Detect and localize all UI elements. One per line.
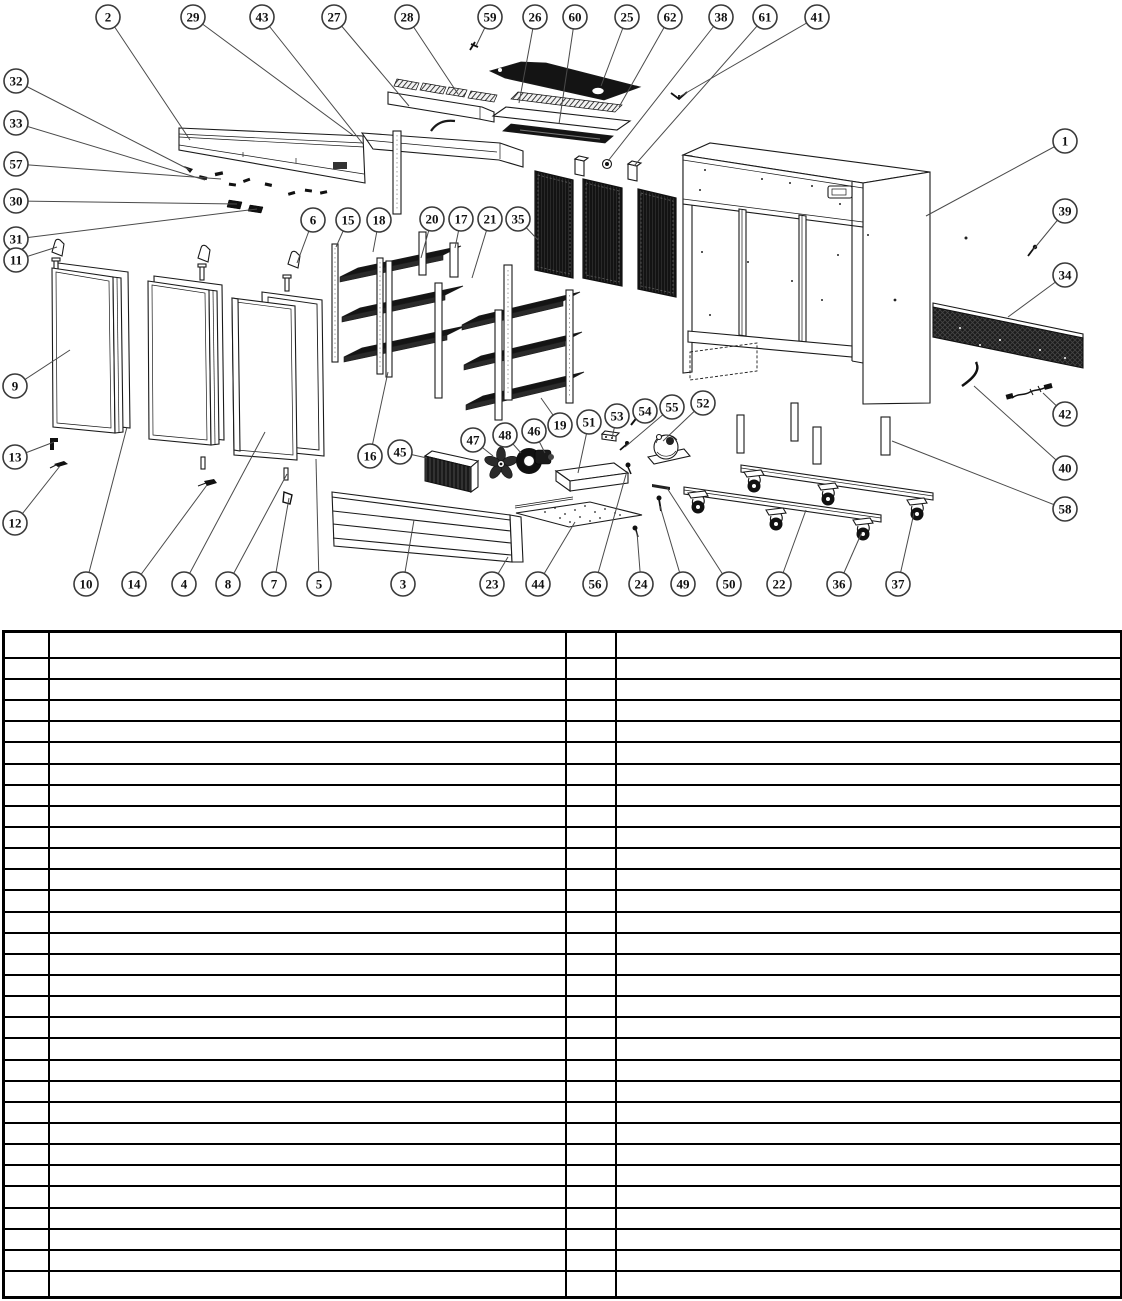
leader-line-32 xyxy=(16,81,190,170)
parts-table-cell-item-no-left xyxy=(4,890,49,911)
parts-table-cell-description-left xyxy=(49,890,566,911)
mesh-panels xyxy=(535,171,676,297)
parts-table-cell-description-left xyxy=(49,996,566,1017)
parts-table-cell-item-no-left xyxy=(4,1208,49,1229)
leader-line-30 xyxy=(16,201,237,204)
base-post xyxy=(791,403,798,441)
parts-table-row xyxy=(4,954,1122,975)
balloon-number-13: 13 xyxy=(9,450,23,465)
parts-table-row xyxy=(4,1186,1122,1207)
callout-balloon-53: 53 xyxy=(605,404,629,428)
parts-table-cell-item-no-right xyxy=(566,1123,616,1144)
parts-table-row xyxy=(4,912,1122,933)
parts-table-cell-item-no-right xyxy=(566,996,616,1017)
parts-table-row xyxy=(4,996,1122,1017)
parts-table-cell-description-right xyxy=(616,742,1122,763)
brand-logo-plate xyxy=(333,162,347,169)
balloon-number-15: 15 xyxy=(342,213,356,228)
callout-balloon-24: 24 xyxy=(629,572,653,596)
balloon-number-58: 58 xyxy=(1059,502,1073,517)
parts-table-row xyxy=(4,1038,1122,1059)
parts-table-cell-description-right xyxy=(616,700,1122,721)
parts-table-row xyxy=(4,1229,1122,1250)
parts-table-cell-description-right xyxy=(616,764,1122,785)
compressor xyxy=(648,435,690,465)
parts-table-cell-description-left xyxy=(49,764,566,785)
balloon-number-46: 46 xyxy=(528,424,542,439)
callout-balloon-34: 34 xyxy=(1053,263,1077,287)
callout-balloon-4: 4 xyxy=(172,572,196,596)
callout-balloon-3: 3 xyxy=(391,572,415,596)
callout-balloon-10: 10 xyxy=(74,572,98,596)
callout-balloon-26: 26 xyxy=(523,5,547,29)
balloon-number-49: 49 xyxy=(677,577,691,592)
parts-table-cell-description-left xyxy=(49,1102,566,1123)
callout-balloon-61: 61 xyxy=(753,5,777,29)
parts-table-cell-item-no-right xyxy=(566,806,616,827)
parts-table-cell-item-no-left xyxy=(4,1165,49,1186)
callout-balloon-29: 29 xyxy=(181,5,205,29)
parts-table-row xyxy=(4,975,1122,996)
callout-balloon-20: 20 xyxy=(420,207,444,231)
parts-table-cell-description-right xyxy=(616,1271,1122,1298)
balloon-number-60: 60 xyxy=(569,10,582,25)
shelf-post xyxy=(386,261,392,377)
parts-table-cell-item-no-right xyxy=(566,1060,616,1081)
parts-table-cell-description-right xyxy=(616,1123,1122,1144)
parts-table-cell-description-left xyxy=(49,679,566,700)
parts-table-cell-item-no-right xyxy=(566,827,616,848)
balloon-number-10: 10 xyxy=(80,577,93,592)
leader-line-33 xyxy=(16,123,205,180)
leader-line-16 xyxy=(370,372,388,456)
cabinet-mullion xyxy=(799,215,806,342)
parts-table-cell-description-left xyxy=(49,1017,566,1038)
balloon-number-14: 14 xyxy=(128,577,142,592)
balloon-number-25: 25 xyxy=(621,10,635,25)
parts-table-cell-description-right xyxy=(616,1038,1122,1059)
callout-balloon-56: 56 xyxy=(583,572,607,596)
drain-pan xyxy=(556,463,628,491)
callout-balloon-28: 28 xyxy=(395,5,419,29)
leader-line-5 xyxy=(316,459,319,584)
parts-table-row xyxy=(4,869,1122,890)
parts-table-cell-item-no-right xyxy=(566,632,616,658)
callout-balloon-60: 60 xyxy=(563,5,587,29)
parts-table-cell-item-no-left xyxy=(4,658,49,679)
parts-table-cell-item-no-right xyxy=(566,1017,616,1038)
callout-balloon-43: 43 xyxy=(250,5,274,29)
balloon-number-36: 36 xyxy=(833,577,847,592)
balloon-number-30: 30 xyxy=(10,194,23,209)
leader-line-8 xyxy=(228,474,287,584)
parts-table-cell-description-left xyxy=(49,742,566,763)
callout-balloon-40: 40 xyxy=(1053,456,1077,480)
parts-table-cell-description-left xyxy=(49,1229,566,1250)
balloon-number-59: 59 xyxy=(484,10,498,25)
parts-table-cell-description-left xyxy=(49,869,566,890)
callout-balloon-12: 12 xyxy=(3,511,27,535)
balloon-number-62: 62 xyxy=(664,10,677,25)
parts-table-cell-description-right xyxy=(616,632,1122,658)
parts-table-cell-item-no-right xyxy=(566,785,616,806)
balloon-number-26: 26 xyxy=(529,10,543,25)
leader-line-41 xyxy=(679,17,817,97)
shelf-post xyxy=(504,265,512,400)
callout-balloon-58: 58 xyxy=(1053,497,1077,521)
balloon-number-9: 9 xyxy=(12,379,19,394)
parts-table-cell-description-right xyxy=(616,679,1122,700)
callout-balloon-47: 47 xyxy=(461,428,485,452)
parts-table-cell-item-no-right xyxy=(566,764,616,785)
parts-table-row xyxy=(4,658,1122,679)
leader-line-7 xyxy=(274,498,289,584)
balloon-number-45: 45 xyxy=(394,445,408,460)
leader-line-31 xyxy=(16,209,257,239)
parts-table-cell-item-no-right xyxy=(566,1144,616,1165)
parts-table-row xyxy=(4,632,1122,658)
parts-table-cell-description-right xyxy=(616,848,1122,869)
balloon-number-55: 55 xyxy=(666,400,680,415)
parts-table-cell-description-left xyxy=(49,658,566,679)
callout-balloon-32: 32 xyxy=(4,69,28,93)
parts-table-row xyxy=(4,785,1122,806)
parts-table-cell-description-left xyxy=(49,933,566,954)
light-assembly-stack xyxy=(490,62,640,143)
parts-table-cell-item-no-left xyxy=(4,827,49,848)
parts-table-cell-item-no-right xyxy=(566,869,616,890)
balloon-number-20: 20 xyxy=(426,212,439,227)
balloon-number-2: 2 xyxy=(105,10,112,25)
parts-table-cell-item-no-left xyxy=(4,679,49,700)
parts-table-cell-description-right xyxy=(616,912,1122,933)
callout-balloon-48: 48 xyxy=(493,423,517,447)
balloon-number-47: 47 xyxy=(467,433,481,448)
shelf-post-short xyxy=(450,243,458,277)
parts-table-cell-description-right xyxy=(616,1102,1122,1123)
parts-table-row xyxy=(4,1060,1122,1081)
parts-table-cell-description-right xyxy=(616,996,1122,1017)
parts-table-cell-item-no-left xyxy=(4,1186,49,1207)
base-post xyxy=(737,415,744,453)
balloon-number-5: 5 xyxy=(316,577,323,592)
parts-table-row xyxy=(4,1208,1122,1229)
parts-table-cell-item-no-left xyxy=(4,1081,49,1102)
balloon-number-7: 7 xyxy=(271,577,278,592)
base-post xyxy=(881,417,890,455)
parts-table-cell-description-right xyxy=(616,658,1122,679)
callout-balloon-15: 15 xyxy=(336,208,360,232)
balloon-number-21: 21 xyxy=(484,212,497,227)
parts-table-cell-item-no-left xyxy=(4,1250,49,1271)
parts-table-cell-description-left xyxy=(49,848,566,869)
parts-table-cell-item-no-right xyxy=(566,1186,616,1207)
leader-line-4 xyxy=(184,432,265,584)
parts-table-cell-item-no-left xyxy=(4,721,49,742)
parts-table-cell-description-left xyxy=(49,1271,566,1298)
parts-table-cell-item-no-right xyxy=(566,742,616,763)
callout-balloon-9: 9 xyxy=(3,374,27,398)
callout-balloon-18: 18 xyxy=(367,208,391,232)
parts-table-row xyxy=(4,1271,1122,1298)
callout-balloon-38: 38 xyxy=(709,5,733,29)
parts-table-cell-description-right xyxy=(616,1144,1122,1165)
leader-line-10 xyxy=(86,427,127,584)
callout-balloon-37: 37 xyxy=(886,572,910,596)
exploded-diagram: 2294327285926602562386141323357303111913… xyxy=(0,0,1122,630)
parts-table-cell-description-left xyxy=(49,785,566,806)
v-clip xyxy=(671,92,687,99)
parts-table-cell-item-no-left xyxy=(4,1038,49,1059)
parts-table-cell-description-right xyxy=(616,806,1122,827)
curved-deflector xyxy=(431,121,455,131)
parts-table-cell-item-no-right xyxy=(566,1102,616,1123)
callout-balloon-54: 54 xyxy=(633,399,657,423)
callout-balloon-2: 2 xyxy=(96,5,120,29)
parts-table-row xyxy=(4,890,1122,911)
wiring-harness xyxy=(1006,383,1053,400)
parts-table-cell-item-no-left xyxy=(4,1017,49,1038)
callout-balloon-27: 27 xyxy=(322,5,346,29)
base-post xyxy=(813,427,821,464)
grille-end-cap xyxy=(510,515,523,562)
door3-glass xyxy=(232,298,297,460)
callout-balloon-16: 16 xyxy=(358,444,382,468)
parts-table-cell-item-no-right xyxy=(566,1038,616,1059)
drip-tray xyxy=(515,497,642,527)
parts-table-cell-item-no-right xyxy=(566,954,616,975)
parts-table-row xyxy=(4,1102,1122,1123)
callout-balloon-17: 17 xyxy=(449,207,473,231)
parts-list-table xyxy=(2,630,1122,1299)
leader-line-14 xyxy=(134,485,207,584)
control-box xyxy=(828,186,852,198)
callout-balloon-36: 36 xyxy=(827,572,851,596)
parts-table-cell-item-no-right xyxy=(566,1229,616,1250)
glass-doors xyxy=(52,263,324,460)
balloon-number-24: 24 xyxy=(635,577,649,592)
balloon-number-57: 57 xyxy=(10,157,24,172)
parts-table-cell-item-no-left xyxy=(4,785,49,806)
cabinet-side-panel xyxy=(863,172,930,404)
parts-table-row xyxy=(4,1123,1122,1144)
balloon-number-38: 38 xyxy=(715,10,729,25)
shelf-post xyxy=(495,310,502,420)
parts-table-cell-description-left xyxy=(49,806,566,827)
door-stop xyxy=(50,438,58,450)
balloon-number-29: 29 xyxy=(187,10,201,25)
parts-table-cell-item-no-left xyxy=(4,1144,49,1165)
top-cover-panels xyxy=(362,42,523,167)
balloon-number-28: 28 xyxy=(401,10,415,25)
parts-table-cell-description-right xyxy=(616,785,1122,806)
callout-balloon-35: 35 xyxy=(506,207,530,231)
balloon-number-1: 1 xyxy=(1062,134,1069,149)
parts-table-cell-item-no-left xyxy=(4,1229,49,1250)
callout-balloon-23: 23 xyxy=(480,572,504,596)
lower-cover-panel xyxy=(362,133,523,167)
balloon-number-4: 4 xyxy=(181,577,188,592)
parts-table-cell-item-no-left xyxy=(4,954,49,975)
parts-table-cell-description-right xyxy=(616,1186,1122,1207)
balloon-number-54: 54 xyxy=(639,404,653,419)
shelf-post xyxy=(435,283,442,398)
balloon-number-39: 39 xyxy=(1059,204,1073,219)
balloon-number-33: 33 xyxy=(10,116,24,131)
parts-table-cell-description-right xyxy=(616,890,1122,911)
callout-balloon-44: 44 xyxy=(526,572,550,596)
balloon-number-31: 31 xyxy=(10,232,23,247)
parts-table-cell-description-right xyxy=(616,1017,1122,1038)
parts-table-cell-description-left xyxy=(49,1250,566,1271)
balloon-number-19: 19 xyxy=(554,418,568,433)
callout-balloon-50: 50 xyxy=(717,572,741,596)
callout-balloon-11: 11 xyxy=(4,248,28,272)
cabinet-bottom-flap-dashed xyxy=(690,343,757,380)
leader-line-40 xyxy=(974,386,1065,468)
parts-table-row xyxy=(4,1081,1122,1102)
balloon-number-22: 22 xyxy=(773,577,786,592)
parts-table-cell-description-right xyxy=(616,1060,1122,1081)
parts-table-cell-item-no-left xyxy=(4,742,49,763)
parts-table-cell-description-right xyxy=(616,869,1122,890)
callout-balloon-6: 6 xyxy=(301,208,325,232)
parts-table-cell-item-no-left xyxy=(4,996,49,1017)
balloon-number-35: 35 xyxy=(512,212,526,227)
parts-table-cell-item-no-right xyxy=(566,1250,616,1271)
callout-balloon-55: 55 xyxy=(660,395,684,419)
parts-table-cell-item-no-right xyxy=(566,912,616,933)
callout-balloon-30: 30 xyxy=(4,189,28,213)
callout-balloon-33: 33 xyxy=(4,111,28,135)
balloon-number-48: 48 xyxy=(499,428,513,443)
balloon-number-51: 51 xyxy=(583,415,596,430)
parts-table-cell-item-no-right xyxy=(566,1081,616,1102)
callout-balloon-51: 51 xyxy=(577,410,601,434)
parts-table-row xyxy=(4,700,1122,721)
parts-table-cell-description-left xyxy=(49,827,566,848)
parts-table-cell-description-right xyxy=(616,1208,1122,1229)
balloon-number-43: 43 xyxy=(256,10,270,25)
parts-table-cell-item-no-left xyxy=(4,912,49,933)
parts-table-cell-item-no-right xyxy=(566,890,616,911)
leader-line-56 xyxy=(595,471,627,584)
leader-line-27 xyxy=(334,17,409,106)
balloon-number-37: 37 xyxy=(892,577,906,592)
parts-table-cell-description-right xyxy=(616,827,1122,848)
parts-table-cell-item-no-left xyxy=(4,1060,49,1081)
door1-glass xyxy=(52,268,115,433)
callout-balloon-22: 22 xyxy=(767,572,791,596)
callout-balloon-52: 52 xyxy=(691,391,715,415)
balloon-number-53: 53 xyxy=(611,409,625,424)
parts-table-cell-item-no-left xyxy=(4,1123,49,1144)
parts-table-cell-item-no-right xyxy=(566,975,616,996)
leader-line-61 xyxy=(634,17,765,166)
callout-balloon-7: 7 xyxy=(262,572,286,596)
parts-table-cell-item-no-left xyxy=(4,700,49,721)
callout-balloon-45: 45 xyxy=(388,440,412,464)
leader-line-43 xyxy=(262,17,363,144)
mounting-bracket xyxy=(602,431,619,441)
balloon-number-18: 18 xyxy=(373,213,387,228)
base-rails-casters xyxy=(684,403,933,541)
page: 2294327285926602562386141323357303111913… xyxy=(0,0,1122,1301)
parts-table-row xyxy=(4,1165,1122,1186)
balloon-number-61: 61 xyxy=(759,10,772,25)
parts-table-row xyxy=(4,679,1122,700)
base-rail xyxy=(741,465,933,500)
balloon-number-32: 32 xyxy=(10,74,23,89)
callout-balloon-5: 5 xyxy=(307,572,331,596)
parts-table-cell-item-no-right xyxy=(566,1271,616,1298)
balloon-number-6: 6 xyxy=(310,213,317,228)
cabinet-mullion xyxy=(739,209,746,336)
balloon-number-11: 11 xyxy=(10,253,22,268)
parts-table-cell-description-right xyxy=(616,933,1122,954)
parts-table-cell-item-no-right xyxy=(566,1208,616,1229)
cabinet-bottom-rail xyxy=(688,331,852,357)
parts-table-row xyxy=(4,1250,1122,1271)
balloon-number-12: 12 xyxy=(9,516,22,531)
drain-hose xyxy=(962,362,977,386)
balloon-number-56: 56 xyxy=(589,577,603,592)
louvered-grille xyxy=(332,492,523,562)
parts-table-row xyxy=(4,1017,1122,1038)
parts-table-row xyxy=(4,933,1122,954)
parts-table-row xyxy=(4,721,1122,742)
callout-balloon-57: 57 xyxy=(4,152,28,176)
parts-table-cell-description-right xyxy=(616,1081,1122,1102)
parts-table-cell-item-no-left xyxy=(4,764,49,785)
parts-table-cell-description-right xyxy=(616,1229,1122,1250)
callout-balloon-21: 21 xyxy=(478,207,502,231)
parts-table-cell-item-no-left xyxy=(4,632,49,658)
parts-table-row xyxy=(4,1144,1122,1165)
balloon-number-50: 50 xyxy=(723,577,736,592)
parts-table-cell-description-left xyxy=(49,1123,566,1144)
balloon-number-34: 34 xyxy=(1059,268,1073,283)
balloon-number-23: 23 xyxy=(486,577,500,592)
parts-table-cell-item-no-left xyxy=(4,1102,49,1123)
callout-balloon-41: 41 xyxy=(805,5,829,29)
door-clip xyxy=(54,461,68,467)
balloon-number-8: 8 xyxy=(225,577,232,592)
callout-balloon-46: 46 xyxy=(522,419,546,443)
parts-table-row xyxy=(4,764,1122,785)
callout-balloon-13: 13 xyxy=(3,445,27,469)
parts-table-cell-description-left xyxy=(49,1208,566,1229)
cabinet-body xyxy=(683,143,968,404)
callout-balloon-14: 14 xyxy=(122,572,146,596)
leader-line-29 xyxy=(193,17,354,136)
parts-table-cell-description-right xyxy=(616,1165,1122,1186)
parts-table-cell-item-no-left xyxy=(4,806,49,827)
parts-table-cell-item-no-right xyxy=(566,933,616,954)
callout-balloon-42: 42 xyxy=(1053,402,1077,426)
leader-line-26 xyxy=(519,17,535,103)
parts-table-cell-description-left xyxy=(49,975,566,996)
canopy-header-panel xyxy=(179,128,365,183)
door2-glass xyxy=(148,281,211,445)
leader-line-2 xyxy=(108,17,190,140)
callout-balloon-49: 49 xyxy=(671,572,695,596)
parts-table-cell-item-no-right xyxy=(566,848,616,869)
parts-table-cell-item-no-right xyxy=(566,1165,616,1186)
callout-balloon-59: 59 xyxy=(478,5,502,29)
parts-table-cell-description-left xyxy=(49,1038,566,1059)
balloon-number-52: 52 xyxy=(697,396,710,411)
